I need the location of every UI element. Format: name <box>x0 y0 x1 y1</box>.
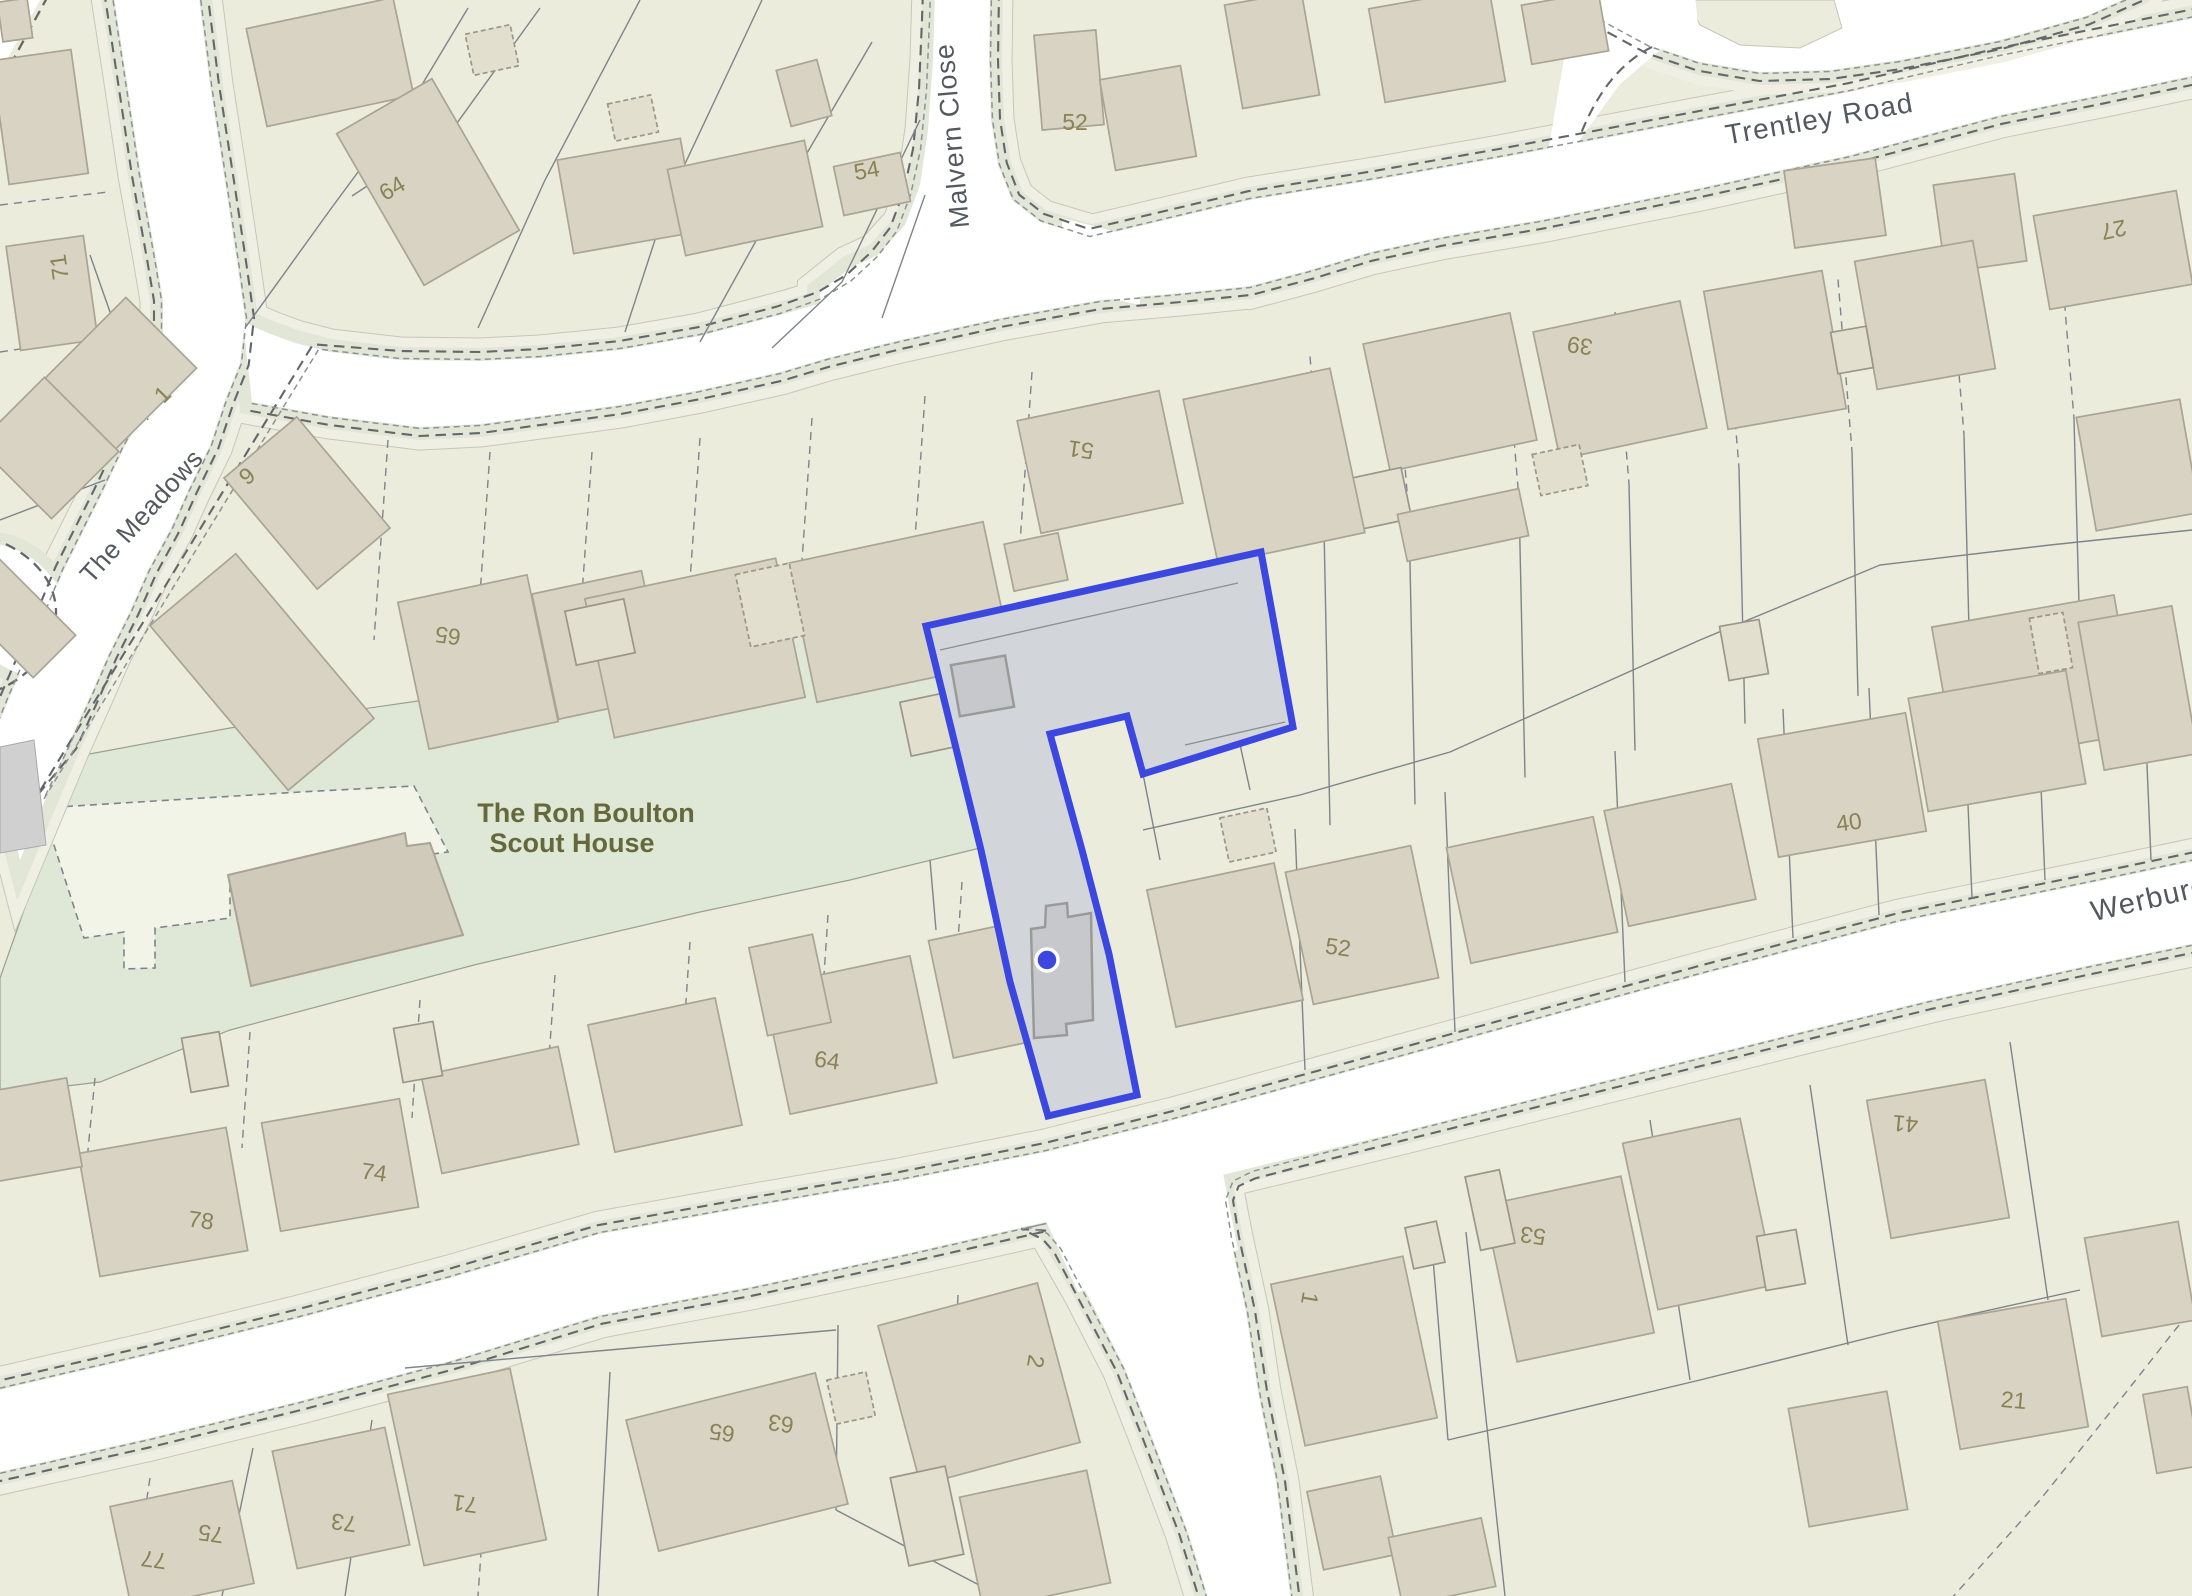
svg-text:65: 65 <box>433 621 462 650</box>
svg-text:53: 53 <box>1518 1221 1547 1250</box>
svg-text:39: 39 <box>1565 331 1594 360</box>
svg-text:71: 71 <box>450 1489 479 1518</box>
svg-text:63: 63 <box>766 1409 795 1438</box>
svg-text:52: 52 <box>1062 109 1088 135</box>
svg-text:77: 77 <box>139 1545 168 1574</box>
svg-text:64: 64 <box>813 1045 842 1074</box>
svg-text:65: 65 <box>707 1418 736 1447</box>
svg-text:40: 40 <box>1834 807 1863 836</box>
svg-text:75: 75 <box>196 1519 225 1548</box>
svg-text:The Ron Boulton: The Ron Boulton <box>477 798 694 828</box>
svg-text:51: 51 <box>1066 435 1095 464</box>
svg-text:78: 78 <box>187 1205 216 1234</box>
svg-text:52: 52 <box>1324 932 1353 961</box>
svg-text:71: 71 <box>44 253 73 282</box>
svg-text:74: 74 <box>360 1157 389 1186</box>
svg-text:21: 21 <box>2000 1386 2028 1414</box>
svg-text:Scout House: Scout House <box>489 828 654 858</box>
svg-text:73: 73 <box>329 1508 358 1537</box>
svg-text:54: 54 <box>852 155 882 185</box>
svg-text:41: 41 <box>1891 1110 1919 1138</box>
svg-text:27: 27 <box>2098 214 2128 245</box>
